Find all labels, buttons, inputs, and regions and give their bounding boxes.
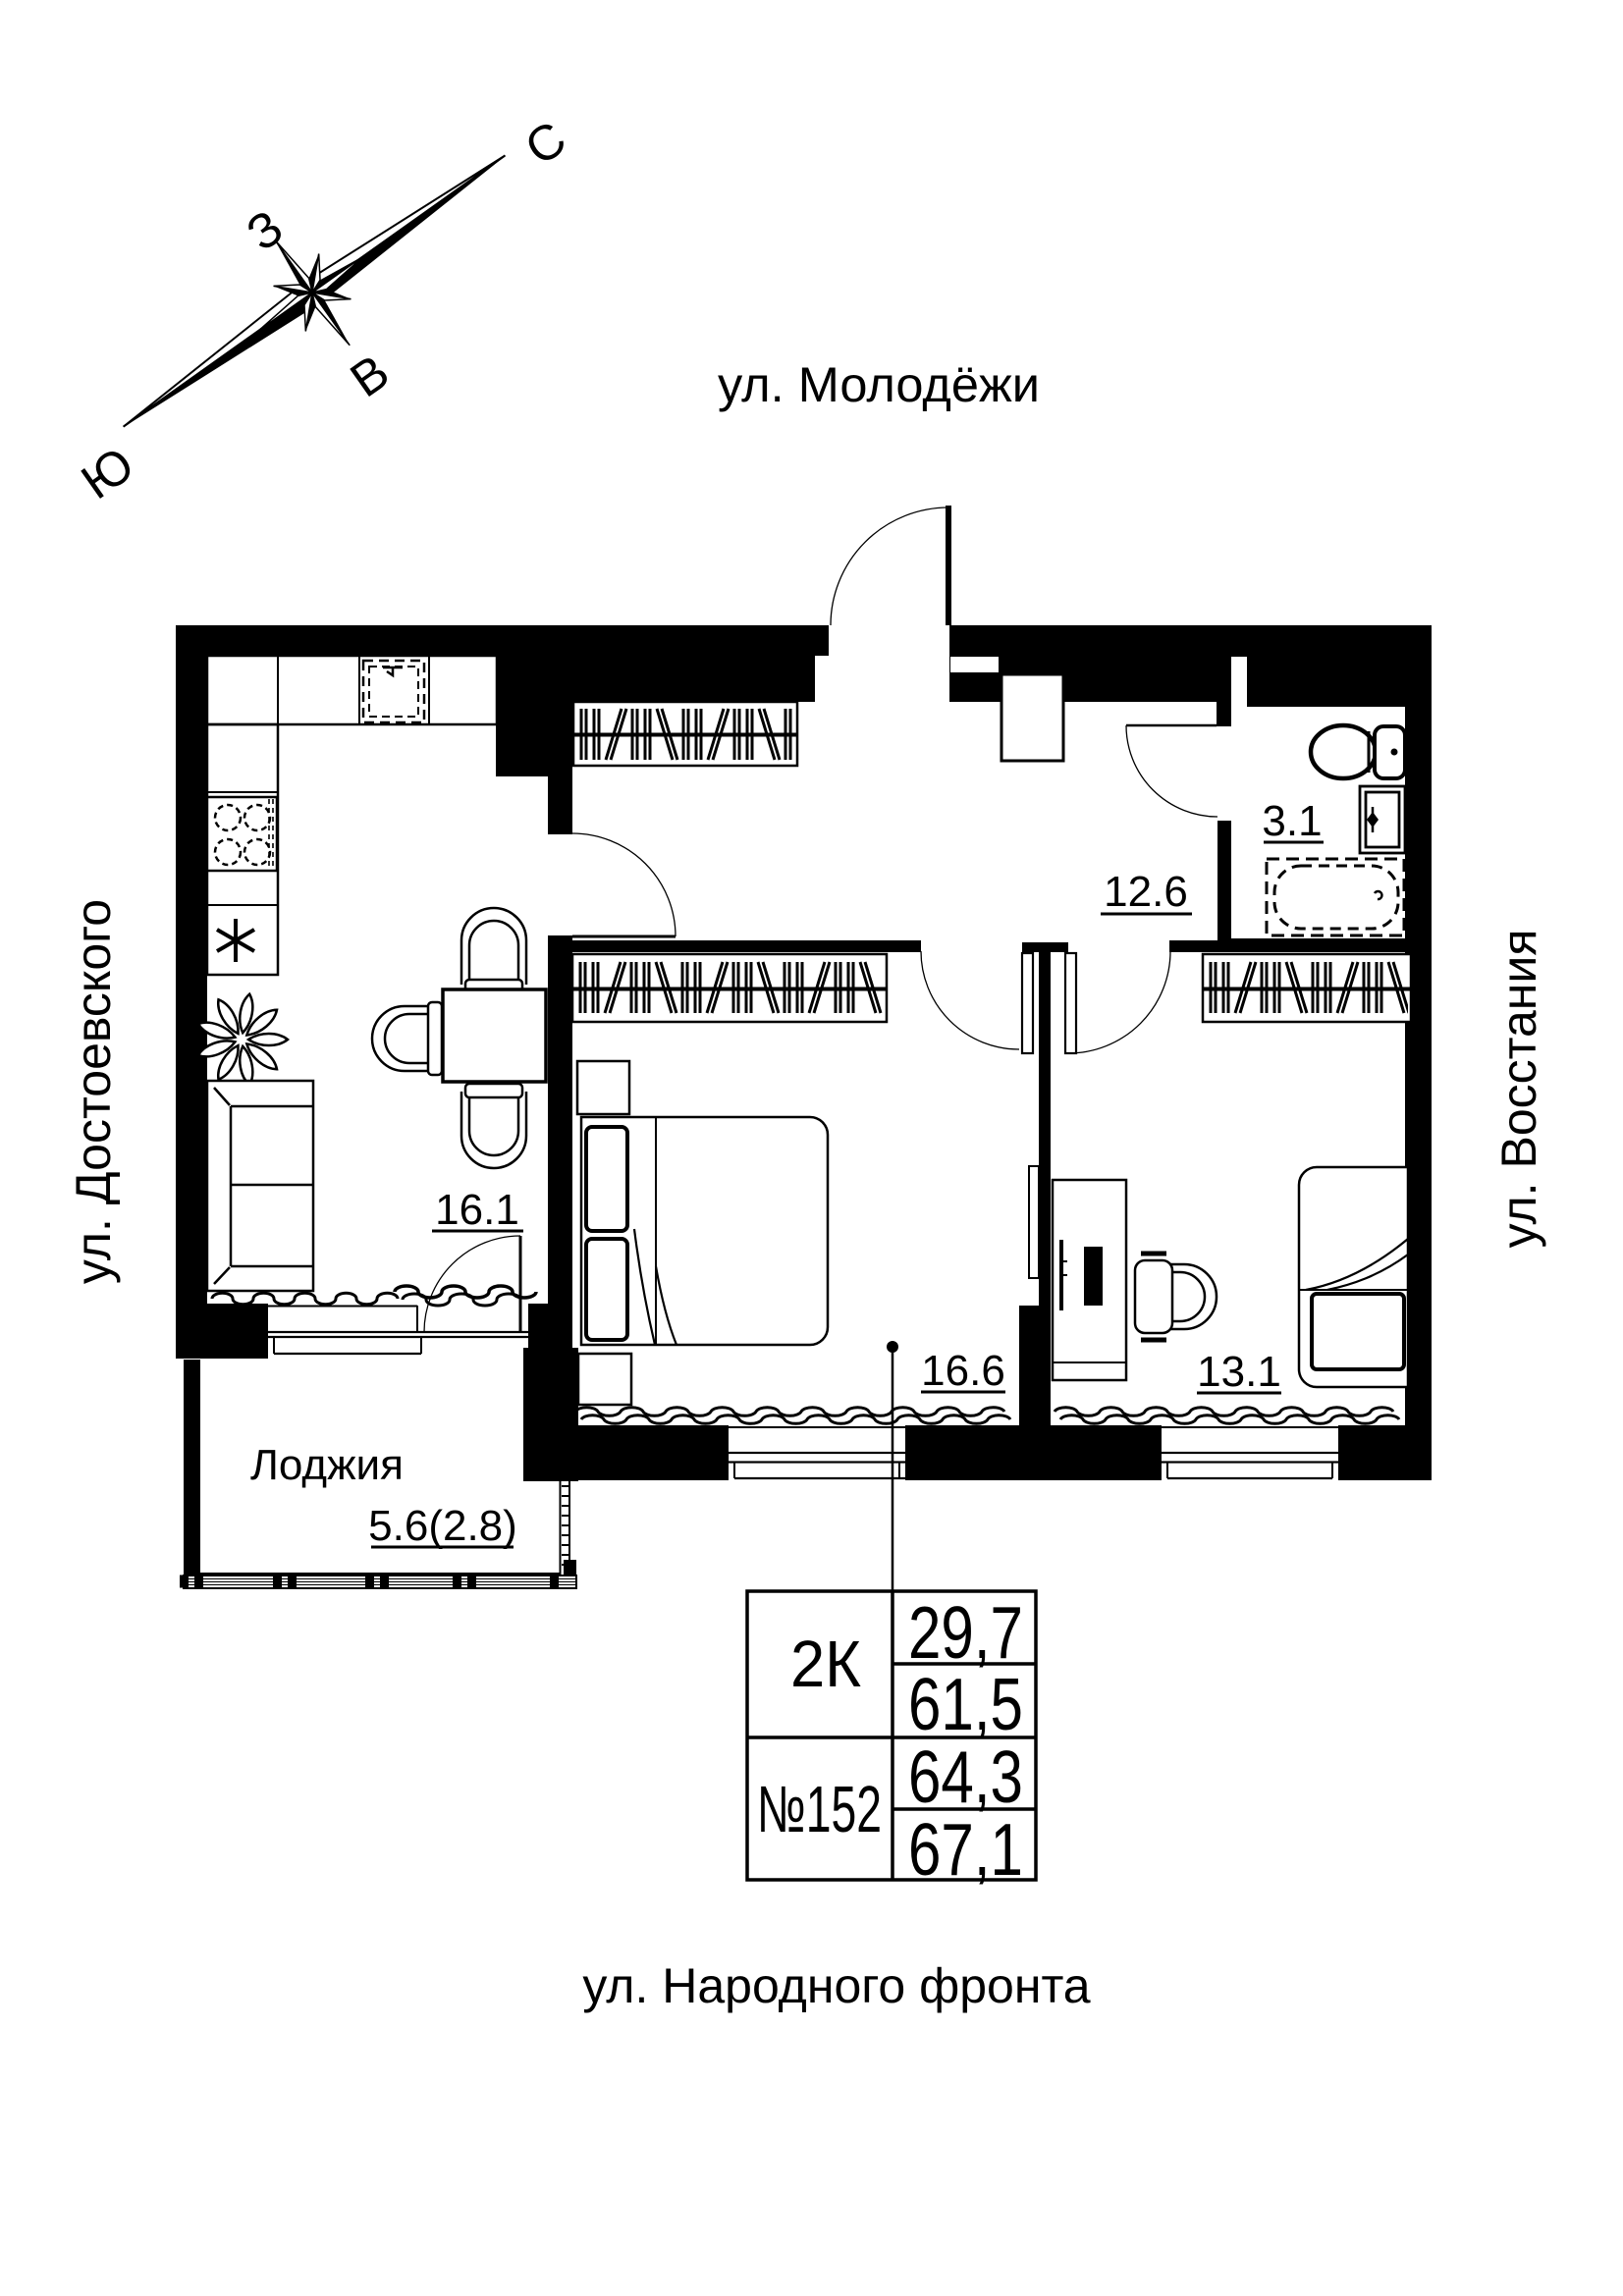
- svg-text:ул. Народного фронта: ул. Народного фронта: [582, 1958, 1090, 2013]
- svg-text:16.1: 16.1: [435, 1186, 519, 1234]
- svg-text:16.6: 16.6: [921, 1347, 1005, 1395]
- svg-text:ул. Молодёжи: ул. Молодёжи: [718, 357, 1040, 412]
- svg-text:61,5: 61,5: [908, 1663, 1023, 1745]
- svg-text:5.6(2.8): 5.6(2.8): [368, 1502, 517, 1550]
- svg-text:3.1: 3.1: [1262, 797, 1322, 845]
- svg-text:2К: 2К: [790, 1628, 861, 1701]
- svg-text:ул. Восстания: ул. Восстания: [1491, 930, 1546, 1249]
- svg-text:№152: №152: [757, 1773, 882, 1846]
- svg-text:29,7: 29,7: [908, 1591, 1023, 1674]
- svg-text:67,1: 67,1: [908, 1808, 1023, 1891]
- svg-text:ул. Достоевского: ул. Достоевского: [66, 899, 121, 1284]
- svg-text:64,3: 64,3: [908, 1735, 1023, 1818]
- svg-text:12.6: 12.6: [1104, 868, 1188, 916]
- svg-text:Лоджия: Лоджия: [250, 1441, 404, 1489]
- svg-text:13.1: 13.1: [1197, 1348, 1281, 1396]
